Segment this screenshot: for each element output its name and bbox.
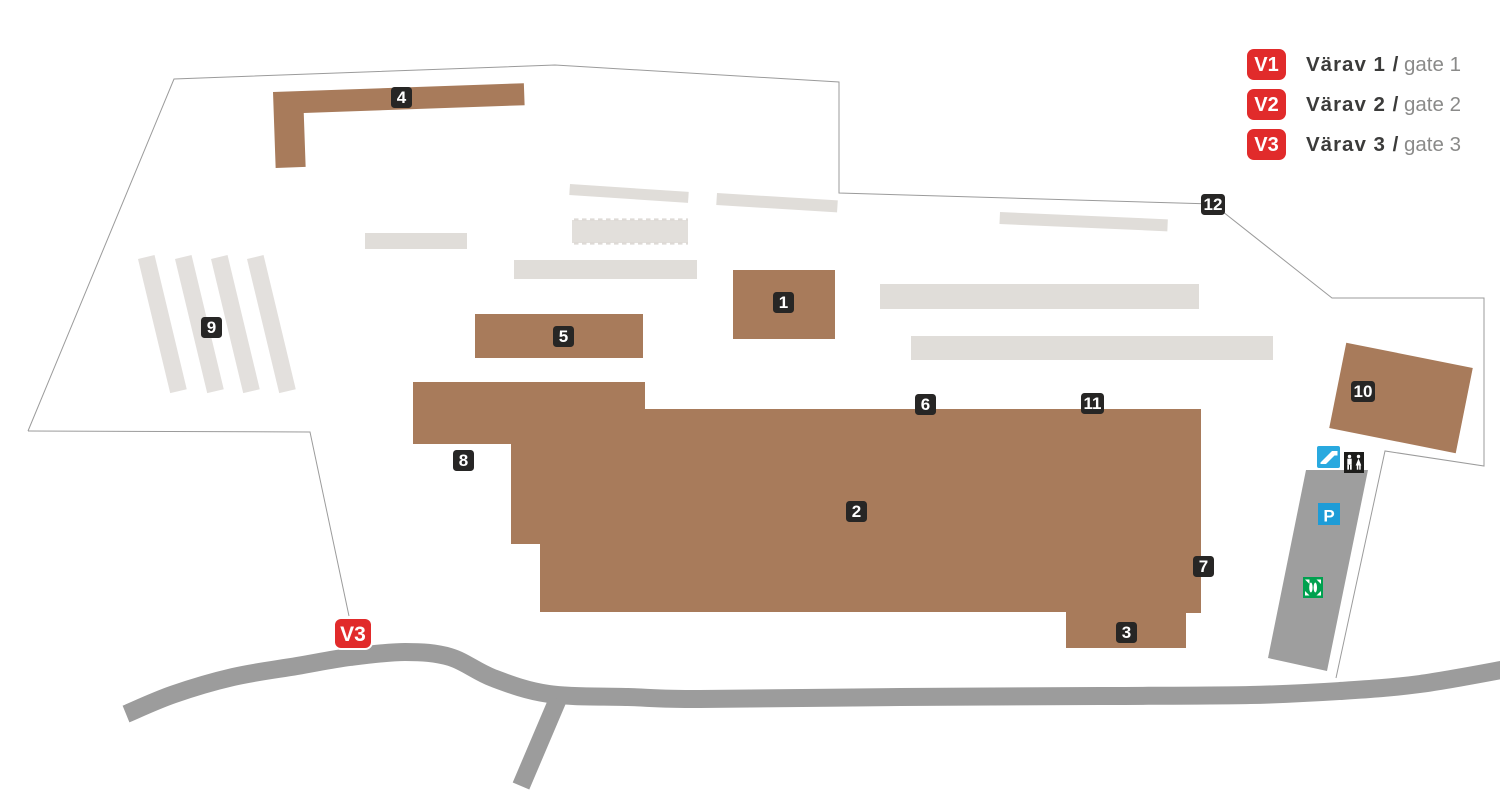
svg-text:V1: V1: [1254, 54, 1278, 76]
svg-text:1: 1: [779, 293, 788, 312]
svg-text:Värav 1 /: Värav 1 /: [1306, 53, 1399, 76]
svg-text:7: 7: [1199, 557, 1208, 576]
svg-text:9: 9: [207, 318, 216, 337]
svg-text:10: 10: [1354, 382, 1373, 401]
svg-text:gate 3: gate 3: [1404, 133, 1461, 156]
svg-text:5: 5: [559, 327, 568, 346]
svg-text:2: 2: [852, 502, 861, 521]
svg-text:V2: V2: [1254, 94, 1278, 116]
svg-text:3: 3: [1122, 623, 1131, 642]
svg-text:8: 8: [459, 451, 468, 470]
svg-text:V3: V3: [340, 623, 366, 646]
svg-text:gate 2: gate 2: [1404, 93, 1461, 116]
svg-text:Värav 3 /: Värav 3 /: [1306, 133, 1399, 156]
svg-text:4: 4: [397, 88, 407, 107]
svg-text:V3: V3: [1254, 134, 1278, 156]
svg-text:gate 1: gate 1: [1404, 53, 1461, 76]
svg-text:Värav 2 /: Värav 2 /: [1306, 93, 1399, 116]
svg-text:P: P: [1323, 507, 1334, 526]
svg-text:11: 11: [1084, 394, 1102, 413]
svg-text:12: 12: [1204, 195, 1223, 214]
svg-text:6: 6: [921, 395, 930, 414]
